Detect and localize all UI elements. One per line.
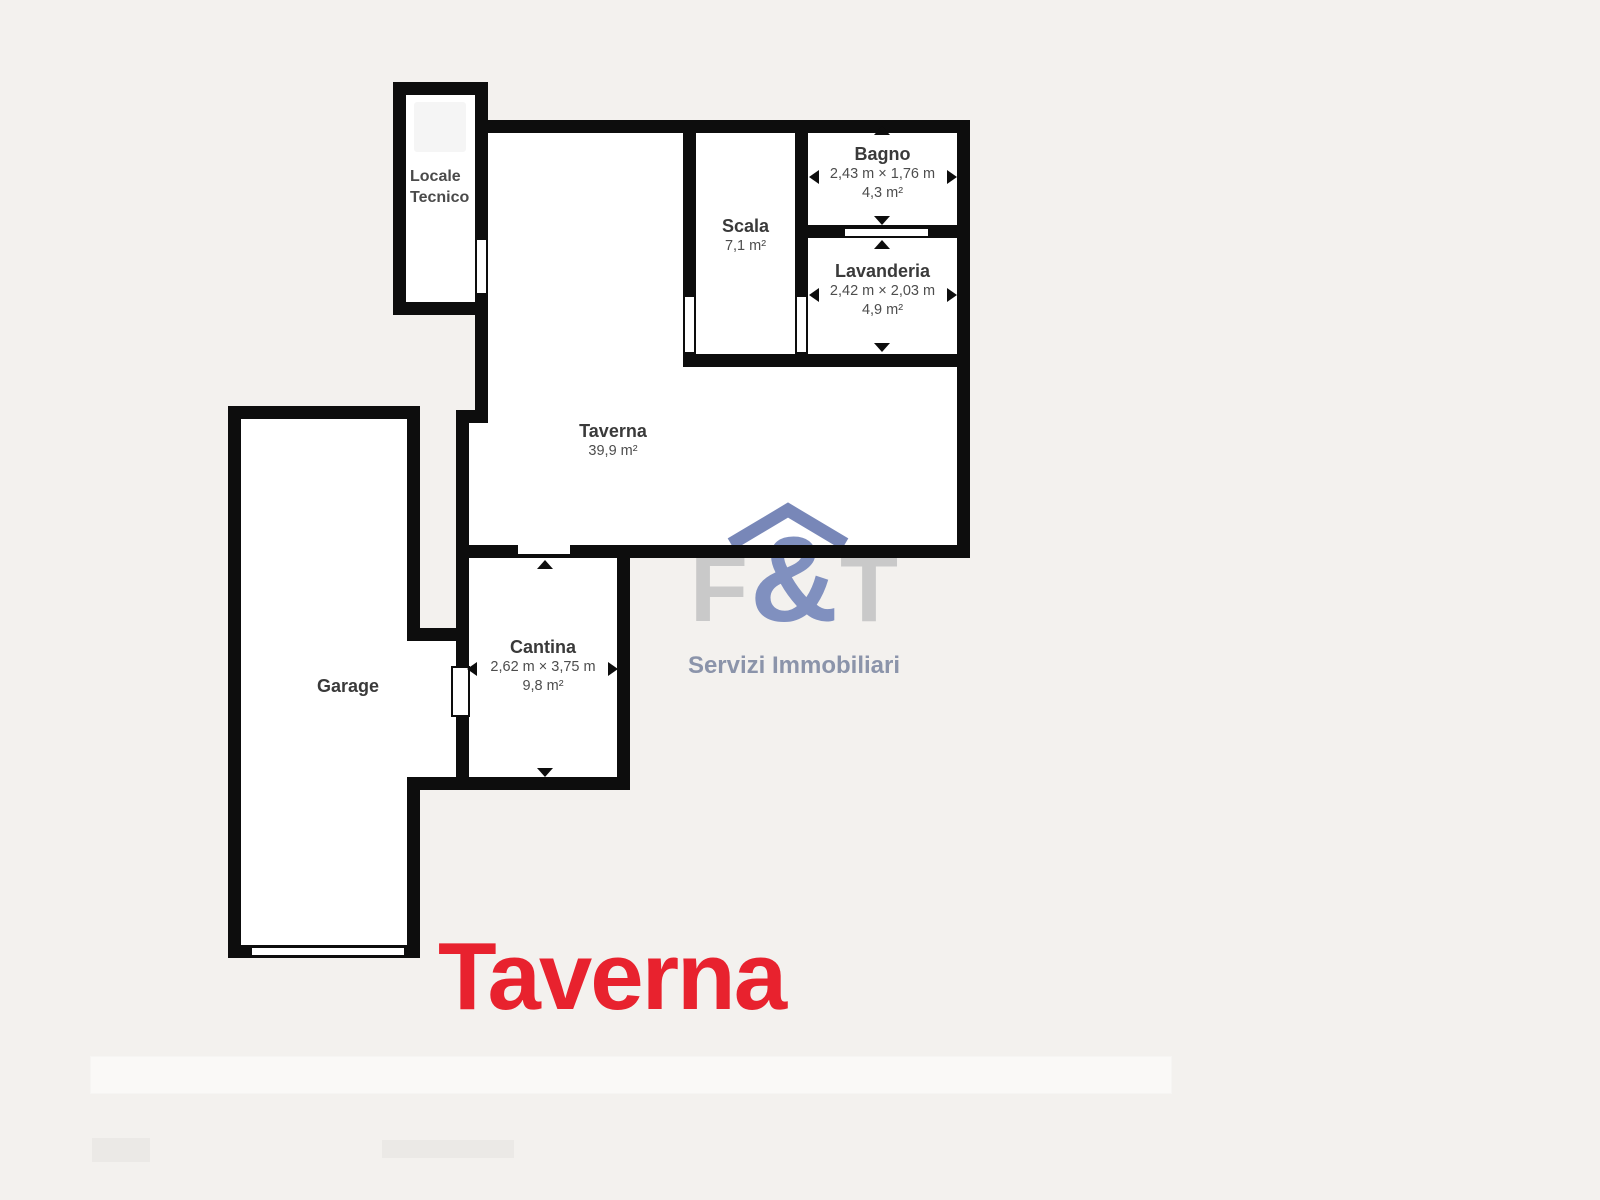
- watermark-smudge: [414, 102, 466, 152]
- room-label-taverna: Taverna 39,9 m²: [518, 421, 708, 461]
- dim-arrow-up-icon: [874, 126, 890, 135]
- dim-arrow-down-icon: [874, 216, 890, 225]
- floorplan-canvas: F & T Servizi Immobiliari: [0, 0, 1600, 1200]
- wall-segment: [393, 82, 406, 315]
- watermark-ghost-band: [90, 1056, 1172, 1094]
- room-label-bagno: Bagno 2,43 m × 1,76 m 4,3 m²: [808, 144, 957, 203]
- room-name: Garage: [248, 676, 448, 697]
- dim-arrow-up-icon: [874, 240, 890, 249]
- room-name: Bagno: [808, 144, 957, 165]
- wall-segment: [407, 777, 630, 790]
- door-opening: [797, 297, 806, 352]
- room-area: 4,3 m²: [808, 184, 957, 203]
- room-dimensions: 2,42 m × 2,03 m: [808, 282, 957, 301]
- watermark-smudge: [382, 1140, 514, 1158]
- room-area: 7,1 m²: [692, 237, 799, 256]
- wall-segment: [393, 82, 488, 95]
- room-name-line: Tecnico: [410, 187, 480, 208]
- garage-door-opening: [252, 948, 404, 955]
- room-dimensions: 2,62 m × 3,75 m: [461, 658, 625, 677]
- room-dimensions: 2,43 m × 1,76 m: [808, 165, 957, 184]
- door-opening: [685, 297, 694, 352]
- window-opening: [845, 229, 928, 236]
- wall-segment: [228, 406, 420, 419]
- room-name: Lavanderia: [808, 261, 957, 282]
- room-name: Cantina: [461, 637, 625, 658]
- wall-segment: [228, 406, 241, 958]
- wall-segment: [407, 406, 420, 641]
- door-opening: [477, 240, 486, 293]
- room-floor-taverna-left-extension: [469, 423, 488, 545]
- dim-arrow-down-icon: [537, 768, 553, 777]
- room-label-cantina: Cantina 2,62 m × 3,75 m 9,8 m²: [461, 637, 625, 696]
- room-label-lavanderia: Lavanderia 2,42 m × 2,03 m 4,9 m²: [808, 261, 957, 320]
- room-area: 4,9 m²: [808, 301, 957, 320]
- logo-tagline: Servizi Immobiliari: [668, 652, 920, 680]
- wall-segment: [683, 354, 970, 367]
- wall-segment: [407, 628, 469, 641]
- room-label-garage: Garage: [248, 676, 448, 697]
- logo-ampersand: &: [750, 518, 838, 640]
- wall-segment: [393, 302, 488, 315]
- room-floor-garage-bump: [407, 641, 456, 777]
- wall-segment: [475, 120, 970, 133]
- wall-segment: [957, 120, 970, 558]
- room-name: Scala: [692, 216, 799, 237]
- room-name: Taverna: [518, 421, 708, 442]
- watermark-smudge: [92, 1138, 150, 1162]
- logo-monogram: F & T: [674, 518, 914, 640]
- room-label-locale-tecnico: Locale Tecnico: [410, 166, 480, 208]
- room-label-scala: Scala 7,1 m²: [692, 216, 799, 256]
- dim-arrow-down-icon: [874, 343, 890, 352]
- wall-segment: [407, 777, 420, 958]
- room-name-line: Locale: [410, 166, 480, 187]
- floor-title: Taverna: [438, 922, 785, 1032]
- room-area: 9,8 m²: [461, 677, 625, 696]
- dim-arrow-up-icon: [537, 560, 553, 569]
- room-area: 39,9 m²: [518, 442, 708, 461]
- wall-segment: [456, 410, 469, 790]
- door-opening: [518, 545, 570, 554]
